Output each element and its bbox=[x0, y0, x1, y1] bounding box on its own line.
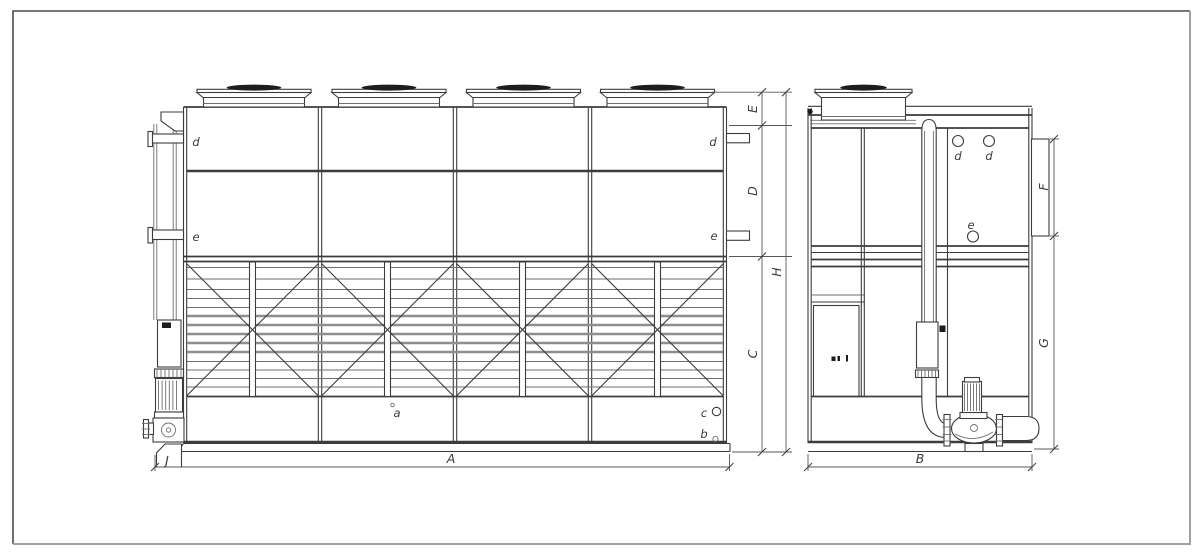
dim-label-F: F bbox=[1036, 183, 1051, 191]
label-side-e: e bbox=[967, 218, 974, 232]
pipe-support-plate bbox=[148, 132, 153, 147]
pipe-support-plate bbox=[148, 228, 153, 244]
riser-pipe-and-pump-side bbox=[916, 120, 1040, 452]
outlet-stub-e bbox=[727, 231, 750, 240]
fan-unit bbox=[467, 85, 581, 107]
connection-d2 bbox=[984, 136, 995, 147]
pipe-support-arm bbox=[153, 230, 184, 240]
label-a: a bbox=[393, 406, 400, 420]
inlet-pipe-and-pump-front bbox=[142, 112, 184, 467]
label-side-d2: d bbox=[985, 149, 993, 163]
engineering-drawing: d e d e a c b d d e A J E D C H B F G bbox=[0, 0, 1200, 559]
fan-motor-dot bbox=[807, 109, 812, 114]
fan-unit bbox=[601, 85, 715, 107]
valve-box-window-side bbox=[940, 326, 946, 333]
riser-pipe bbox=[922, 120, 936, 323]
label-d-left: d bbox=[192, 135, 200, 149]
suction-elbow bbox=[922, 378, 946, 438]
dim-label-H: H bbox=[769, 267, 784, 277]
louver-section bbox=[187, 262, 723, 397]
label-e-right: e bbox=[710, 229, 717, 243]
fan-blade bbox=[362, 85, 417, 91]
marker-ring-c bbox=[712, 407, 720, 415]
discharge-pipe bbox=[1003, 417, 1040, 441]
motor-cap bbox=[965, 378, 980, 383]
pump-motor-side bbox=[963, 382, 982, 413]
label-e-left: e bbox=[192, 230, 199, 244]
dim-label-E: E bbox=[745, 105, 760, 113]
label-b: b bbox=[700, 427, 707, 441]
front-view bbox=[142, 85, 750, 467]
fan-unit bbox=[197, 85, 311, 107]
motor-base-side bbox=[960, 413, 987, 419]
label-side-d1: d bbox=[954, 149, 962, 163]
door-handle-marks bbox=[838, 356, 841, 361]
connection-d1 bbox=[953, 136, 964, 147]
label-c: c bbox=[701, 406, 708, 420]
side-view bbox=[807, 85, 1049, 452]
fan-unit bbox=[332, 85, 446, 107]
pump-volute bbox=[153, 418, 184, 442]
dim-label-B: B bbox=[916, 451, 925, 466]
outlet-stub-d bbox=[727, 134, 750, 143]
dim-label-A: A bbox=[446, 451, 456, 466]
label-d-right: d bbox=[709, 135, 717, 149]
pipe-support-arm bbox=[153, 134, 184, 143]
dim-label-D: D bbox=[745, 186, 760, 196]
fan-blade bbox=[630, 85, 685, 91]
door-handle-marks bbox=[832, 357, 836, 362]
valve-box-side bbox=[917, 322, 939, 368]
fan-blade bbox=[227, 85, 282, 91]
dim-label-C: C bbox=[745, 349, 760, 358]
access-door bbox=[814, 306, 860, 397]
door-handle-marks bbox=[846, 355, 848, 362]
pump-foundation-side bbox=[965, 444, 983, 452]
pump-foundation bbox=[157, 444, 182, 467]
motor-base bbox=[155, 412, 184, 418]
drawing-canvas: d e d e a c b d d e A J E D C H B F G bbox=[0, 0, 1200, 559]
pipe-bracket bbox=[161, 112, 184, 131]
fan-blade bbox=[496, 85, 551, 91]
fan-blade bbox=[840, 85, 887, 91]
valve-box-window bbox=[162, 323, 171, 329]
fan-unit bbox=[815, 85, 912, 120]
connection-e bbox=[968, 231, 979, 242]
dim-label-G: G bbox=[1036, 338, 1051, 348]
